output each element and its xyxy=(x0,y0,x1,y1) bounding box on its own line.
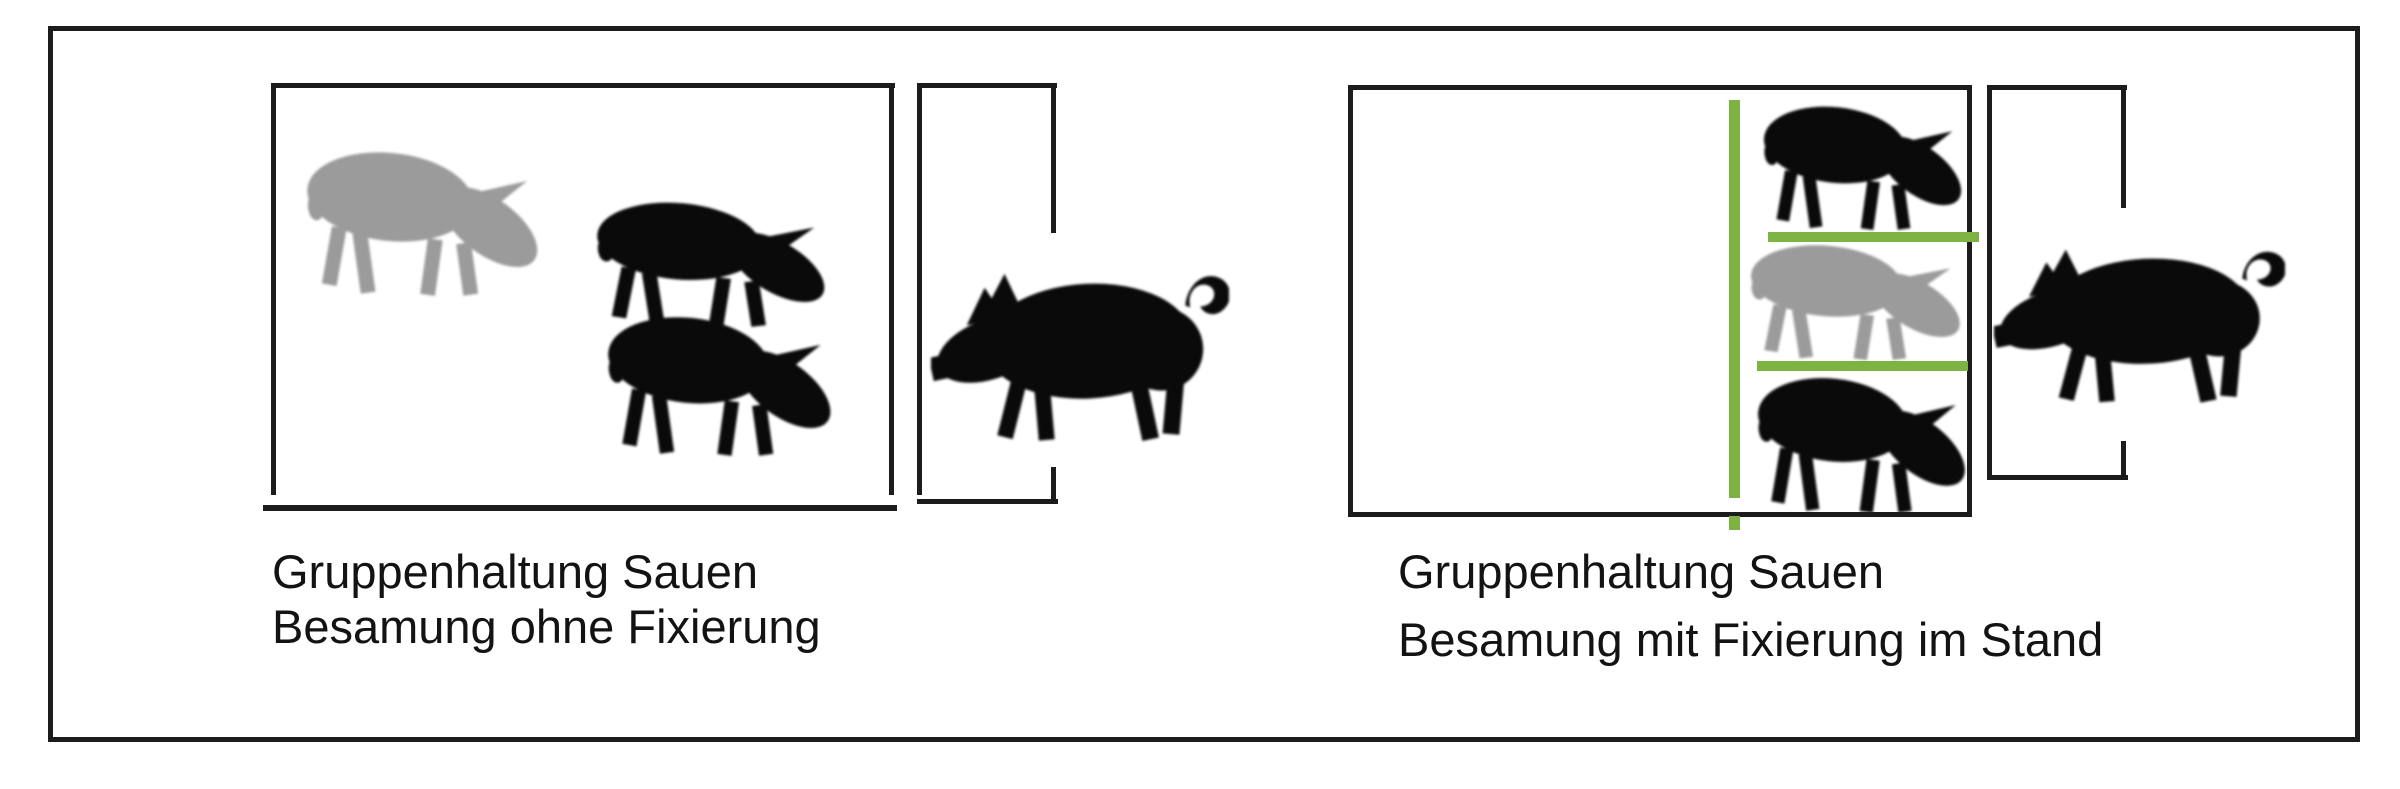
left-boar-stall-wall-right-upper xyxy=(1051,83,1056,233)
left-boar-stall-wall-right-lower xyxy=(1051,467,1056,500)
right-boar-stall-wall-right-upper xyxy=(2121,85,2126,208)
right-pen-frame xyxy=(1348,85,1972,517)
left-pen-wall-left xyxy=(271,83,276,495)
left-boar-stall-wall-top xyxy=(917,83,1057,88)
left-boar-stall-wall-bottom xyxy=(917,499,1058,504)
left-caption-line2: Besamung ohne Fixierung xyxy=(272,601,821,653)
right-boar-stall-wall-bottom xyxy=(1987,475,2128,480)
right-boar-stall-wall-left xyxy=(1987,85,1992,480)
fixation-stand-bar-lower xyxy=(1757,361,1968,371)
housing-systems-diagram: Gruppenhaltung Sauen Besamung ohne Fixie… xyxy=(0,0,2400,789)
fixation-stand-bar-upper xyxy=(1768,232,1979,242)
fixation-stand-bar-vertical xyxy=(1729,100,1740,498)
left-pen-wall-top xyxy=(271,83,895,88)
fixation-stand-bar-vertical-stub xyxy=(1729,516,1740,530)
left-boar-stall-wall-left xyxy=(917,83,922,495)
left-pen-wall-bottom xyxy=(263,505,897,511)
left-pen-wall-right xyxy=(889,83,894,495)
right-caption-line2: Besamung mit Fixierung im Stand xyxy=(1398,614,2103,666)
right-boar-stall-wall-top xyxy=(1987,85,2127,90)
left-caption-line1: Gruppenhaltung Sauen xyxy=(272,546,758,598)
right-caption-line1: Gruppenhaltung Sauen xyxy=(1398,546,1884,598)
